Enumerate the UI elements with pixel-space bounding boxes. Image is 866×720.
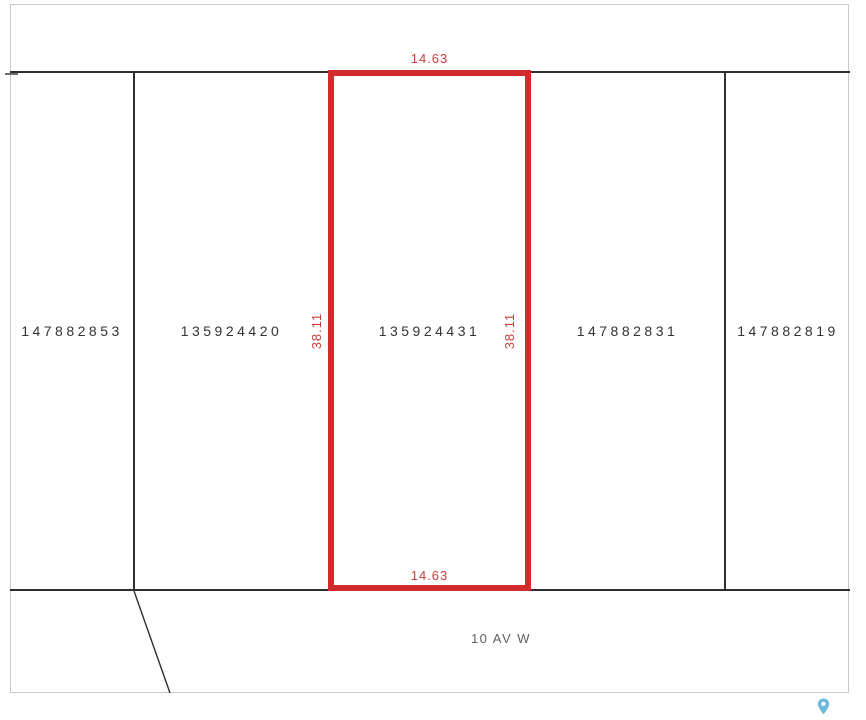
parcel-number: 135924420 [181,323,283,339]
street-name-label: 10 AV W [430,631,572,646]
parcel-region-147882831[interactable]: 147882831 [531,72,724,590]
location-pin-icon[interactable] [817,698,830,715]
parcel-region-135924420[interactable]: 135924420 [135,72,328,590]
parcel-number: 147882853 [21,323,123,339]
parcel-map: 147882853 135924420 135924431 147882831 … [0,0,866,720]
selected-parcel-outline [328,70,531,591]
dimension-label-bottom: 14.63 [328,568,531,583]
parcel-region-147882853[interactable]: 147882853 [11,72,133,590]
parcel-number: 147882819 [737,323,839,339]
dimension-label-left: 38.11 [309,291,325,371]
dimension-label-top: 14.63 [328,51,531,66]
dimension-label-right: 38.11 [502,291,518,371]
parcel-region-147882819[interactable]: 147882819 [726,72,850,590]
parcel-number: 147882831 [577,323,679,339]
